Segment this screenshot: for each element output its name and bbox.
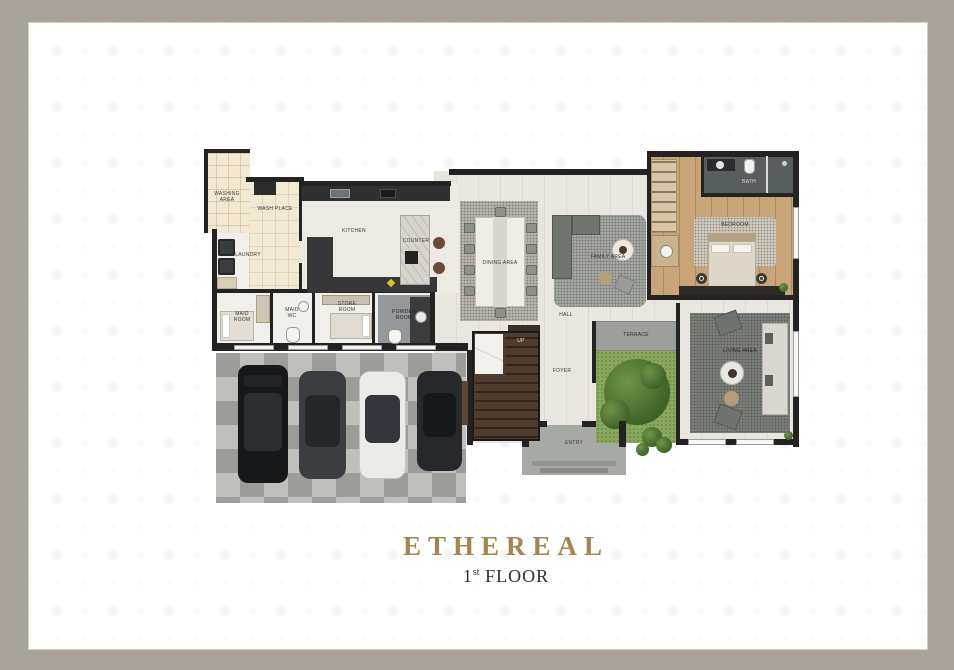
- porch-bush: [636, 443, 649, 456]
- bedroom-plant: [779, 283, 788, 292]
- car-black-suv: [238, 365, 288, 483]
- wall: [372, 291, 375, 345]
- wash-corridor-floor: [249, 181, 301, 293]
- floor-caption: 1st FLOOR: [29, 566, 954, 587]
- room-label-maid-room: MAID ROOM: [229, 311, 255, 324]
- tv-console: [679, 286, 785, 295]
- room-label-foyer: FOYER: [553, 368, 571, 374]
- page-background: WASHING AREA WASH PLACE LAUNDRY MAID ROO…: [0, 0, 954, 670]
- bath-basin: [716, 161, 724, 169]
- dining-chair: [526, 265, 537, 275]
- garage-storage-door: [342, 345, 382, 350]
- floorplan-card: WASHING AREA WASH PLACE LAUNDRY MAID ROO…: [28, 22, 928, 650]
- floor-label: 1st FLOOR: [29, 566, 954, 587]
- bar-stool: [433, 237, 445, 249]
- dining-chair: [495, 308, 506, 318]
- stove: [380, 189, 396, 198]
- car-glass: [244, 393, 282, 451]
- porch-pier: [619, 421, 626, 447]
- wall: [312, 291, 315, 345]
- sofa-cushion: [765, 375, 773, 386]
- room-label-counter: COUNTER: [403, 238, 429, 244]
- sofa-cushion: [765, 333, 773, 344]
- room-label-living-area: LIVING AREA: [723, 348, 757, 354]
- store-pillow: [362, 315, 370, 337]
- dining-chair: [526, 223, 537, 233]
- water-heater: [254, 182, 276, 195]
- powder-toilet: [388, 329, 402, 344]
- bed-pillow: [733, 244, 752, 253]
- shower-drain: [782, 161, 787, 166]
- bar-stool: [433, 262, 445, 274]
- dining-chair: [464, 223, 475, 233]
- room-label-maid-wc: MAID WC: [281, 307, 303, 320]
- car-white-sedan: [359, 371, 406, 479]
- dining-chair: [464, 244, 475, 254]
- room-label-family-area: FAMILY AREA: [591, 254, 626, 260]
- room-label-hall: HALL: [559, 312, 573, 318]
- floor-number: 1: [463, 566, 473, 586]
- window: [688, 439, 726, 445]
- living-side-table: [724, 391, 739, 406]
- wall: [299, 263, 302, 293]
- cooktop: [405, 251, 418, 264]
- dining-chair: [495, 207, 506, 217]
- garage-storage-door: [234, 345, 274, 350]
- car-dark-coupe: [417, 371, 462, 471]
- porch-step: [532, 461, 616, 466]
- stair-label-up: UP: [517, 338, 524, 344]
- project-title: ETHEREAL: [29, 531, 954, 562]
- family-sofa: [552, 215, 572, 279]
- dining-chair: [526, 244, 537, 254]
- wall: [582, 421, 596, 427]
- living-table-decor: [728, 369, 737, 378]
- wall: [701, 193, 799, 197]
- bed-pillow: [711, 244, 730, 253]
- kitchen-counter-top: [302, 186, 450, 201]
- window: [736, 439, 774, 445]
- window: [793, 207, 799, 259]
- wall: [204, 149, 208, 233]
- wall: [430, 289, 435, 351]
- room-label-kitchen: KITCHEN: [342, 228, 366, 234]
- pouf: [598, 271, 612, 285]
- car-hood: [244, 375, 282, 387]
- nightstand-lamp: [756, 273, 767, 284]
- stair-treads: [475, 376, 505, 438]
- vanity-sink: [660, 245, 673, 258]
- room-label-entry: ENTRY: [565, 440, 583, 446]
- room-label-laundry: LAUNDRY: [235, 252, 261, 258]
- bed-headboard: [708, 233, 756, 241]
- dining-chair: [464, 265, 475, 275]
- kitchen-sink: [330, 189, 350, 198]
- room-label-dining-area: DINING AREA: [483, 260, 518, 266]
- floor-plan: WASHING AREA WASH PLACE LAUNDRY MAID ROO…: [204, 145, 804, 507]
- wall: [592, 321, 596, 383]
- dining-chair: [526, 286, 537, 296]
- floor-word: FLOOR: [485, 566, 549, 586]
- wall: [647, 295, 799, 300]
- wall: [647, 151, 799, 157]
- car-glass: [365, 395, 400, 443]
- laundry-shelf: [217, 277, 237, 289]
- porch-step: [540, 468, 608, 473]
- garage-storage-door: [288, 345, 328, 350]
- room-label-wash-place: WASH PLACE: [257, 206, 292, 212]
- stair-landing: [475, 334, 503, 374]
- room-label-store-room: STORE ROOM: [332, 301, 362, 314]
- garage-storage-door: [396, 345, 436, 350]
- caption-block: ETHEREAL: [29, 531, 954, 562]
- window: [793, 331, 799, 397]
- wall: [449, 169, 649, 175]
- room-label-washing-area: WASHING AREA: [210, 191, 244, 204]
- room-label-terrace: TERRACE: [623, 332, 649, 338]
- bath-toilet: [744, 159, 755, 174]
- room-label-powder-room: POWDER ROOM: [388, 309, 420, 322]
- floor-suffix: st: [473, 567, 480, 578]
- dryer: [218, 258, 235, 275]
- family-table-decor: [619, 246, 627, 254]
- room-label-bath: BATH: [742, 179, 756, 185]
- garden-bush-small-2: [640, 363, 666, 389]
- toilet: [286, 327, 300, 343]
- car-glass: [423, 393, 456, 437]
- kitchen-island: [400, 215, 430, 285]
- family-sofa-chaise: [572, 215, 600, 235]
- living-plant: [784, 431, 793, 440]
- shower-glass: [766, 156, 768, 193]
- washer: [218, 239, 235, 256]
- wall: [676, 303, 680, 443]
- car-grey-sedan: [299, 371, 346, 479]
- wall: [270, 291, 273, 345]
- stair-treads: [505, 334, 538, 438]
- porch-bush: [656, 437, 672, 453]
- dining-chair: [464, 286, 475, 296]
- closet-hangers: [651, 159, 677, 233]
- wall: [701, 156, 704, 196]
- nightstand-lamp: [696, 273, 707, 284]
- wall: [204, 149, 250, 153]
- room-label-bedroom: BEDROOM: [721, 222, 749, 228]
- car-glass: [305, 395, 340, 447]
- maid-wardrobe: [256, 295, 270, 323]
